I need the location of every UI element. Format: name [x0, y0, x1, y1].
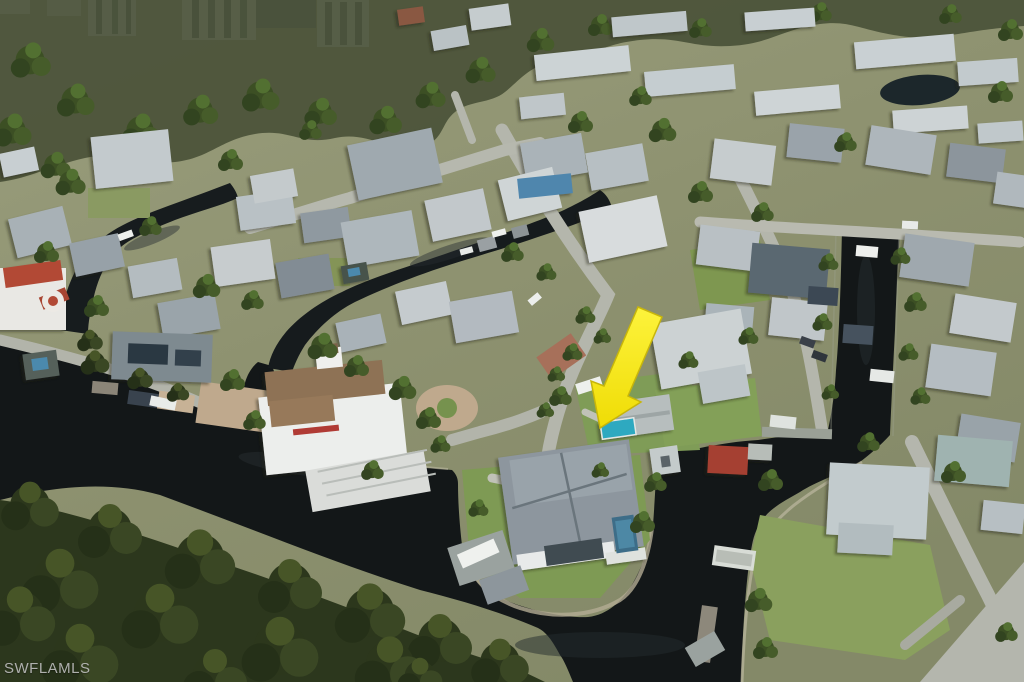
- aerial-photo-canvas: [0, 0, 1024, 682]
- aerial-photo: SWFLAMLS: [0, 0, 1024, 682]
- watermark-text: SWFLAMLS: [4, 660, 91, 677]
